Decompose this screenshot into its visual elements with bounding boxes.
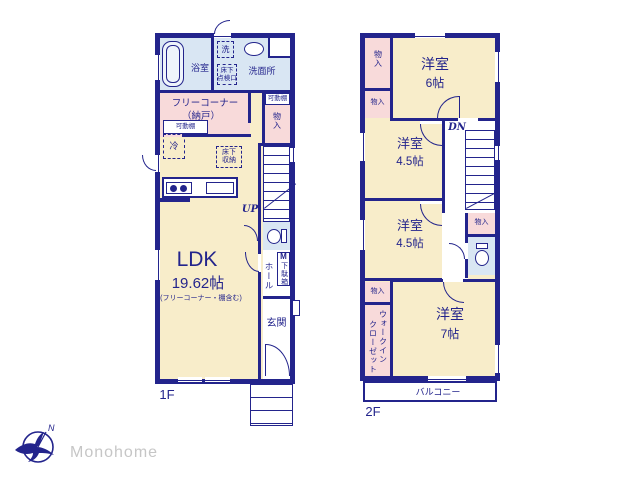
- floor2-label: 2F: [361, 404, 385, 419]
- room7-size: 7帖: [425, 327, 475, 341]
- fridge-space: 冷: [163, 134, 185, 159]
- kitchen-counter: [162, 177, 238, 198]
- underfloor-storage-line1: 床下: [222, 149, 236, 157]
- backdoor-arc: [214, 20, 230, 34]
- movable-shelf-right: 可動棚: [265, 93, 290, 105]
- wall: [390, 279, 393, 376]
- wall: [390, 38, 393, 121]
- shoe-cabinet-label: 下駄箱: [279, 262, 287, 286]
- wall: [268, 38, 270, 58]
- ldk-name: LDK: [166, 248, 228, 273]
- hall-door-arc: [245, 252, 259, 272]
- movable-shelf-label: 可動棚: [176, 123, 196, 131]
- room-bath-label: 浴室: [186, 63, 214, 74]
- wall: [211, 38, 214, 90]
- kitchen-sink: [206, 182, 234, 194]
- washing-machine-label: 洗: [222, 45, 230, 54]
- window: [415, 33, 445, 38]
- underfloor-access-hatch: 床下 点検口: [217, 64, 237, 85]
- room45a-size: 4.5帖: [380, 156, 440, 170]
- window: [360, 133, 365, 161]
- underfloor-storage-line2: 収納: [222, 157, 236, 165]
- free-corner-label: フリーコーナー: [165, 98, 245, 109]
- stairs-up-label: UP: [240, 204, 260, 216]
- washbasin-sink: [244, 42, 264, 56]
- underfloor-access-line2: 点検口: [217, 75, 237, 83]
- room6-door-arc: [437, 96, 459, 118]
- window: [290, 148, 295, 162]
- toilet-tank: [281, 229, 287, 243]
- logo-brand: Monohome: [70, 444, 158, 462]
- washing-machine-space: 洗: [217, 41, 234, 58]
- toilet-door-gap: [258, 225, 261, 241]
- movable-shelf-right-label: 可動棚: [268, 95, 288, 103]
- wic-label-line2: クローゼット: [368, 320, 377, 374]
- stove-burner: [170, 185, 177, 192]
- staircase-down: [465, 130, 495, 210]
- window: [495, 146, 500, 160]
- room6-name: 洋室: [405, 56, 465, 73]
- svg-text:N: N: [48, 423, 55, 433]
- toilet2-bowl: [475, 250, 489, 266]
- room6-door-leaf: [459, 96, 460, 118]
- storage-right-label: 物入: [272, 112, 281, 130]
- stove: [166, 182, 192, 194]
- sidedoor-arc: [142, 155, 156, 171]
- movable-shelf: 可動棚: [163, 120, 208, 134]
- entrance-door-leaf: [265, 344, 266, 376]
- storage-b-label: 物入: [365, 99, 390, 107]
- ldk-note: (フリーコーナー・棚含む): [156, 295, 246, 303]
- toilet2-door-gap: [465, 243, 468, 259]
- logo-compass-icon: N: [12, 420, 64, 470]
- window: [495, 52, 500, 82]
- toilet-bowl: [267, 229, 281, 244]
- floor1-plan: 浴室 洗 床下 点検口 洗面所 フリーコーナー （納戸） 可動棚 可動棚 物入 …: [155, 33, 295, 384]
- toilet2-tank: [476, 243, 488, 249]
- stairs-down-label: DN: [445, 122, 469, 134]
- room45b-size: 4.5帖: [380, 238, 440, 252]
- wall: [160, 198, 190, 202]
- washroom-closet: [270, 38, 290, 57]
- balcony-label: バルコニー: [413, 387, 463, 398]
- toilet-door-arc: [244, 225, 258, 241]
- shoe-cabinet: M 下駄箱: [277, 252, 290, 286]
- window: [155, 250, 160, 280]
- staircase-up: [263, 146, 290, 222]
- bathtub: [162, 41, 184, 87]
- wall: [248, 93, 251, 123]
- porch-steps: [250, 384, 293, 426]
- storage-d-label: 物入: [365, 288, 390, 296]
- wall: [268, 56, 290, 58]
- room7-name: 洋室: [420, 306, 480, 323]
- wall: [442, 121, 445, 213]
- window: [205, 377, 230, 382]
- stove-burner: [180, 185, 187, 192]
- window: [360, 220, 365, 250]
- room-washroom-label: 洗面所: [240, 66, 284, 77]
- logo: N Monohome: [12, 420, 212, 472]
- floor2-plan: 物入 物入 洋室 6帖 DN 洋室 4.5帖 洋室 4.5帖 物入 物入 ウォー…: [360, 33, 500, 381]
- room7-door-arc: [443, 282, 464, 303]
- floor1-label: 1F: [156, 387, 178, 402]
- ldk-size: 19.62帖: [160, 275, 236, 293]
- underfloor-storage: 床下 収納: [216, 146, 242, 168]
- entrance-label: 玄関: [263, 318, 290, 330]
- storage-a-label: 物入: [373, 50, 382, 68]
- window: [155, 55, 160, 80]
- room6-size: 6帖: [410, 76, 460, 90]
- window: [495, 345, 500, 373]
- window: [178, 377, 202, 382]
- storage-c-label: 物入: [468, 219, 495, 227]
- hall-label: ホール: [264, 262, 274, 291]
- entrance-side-panel: [292, 300, 300, 316]
- window: [428, 376, 466, 381]
- wall: [182, 134, 251, 137]
- underfloor-access-line1: 床下: [221, 67, 234, 75]
- fridge-label: 冷: [169, 141, 178, 152]
- wic-label-line1: ウォークイン: [378, 310, 387, 364]
- shoe-cabinet-prefix: M: [280, 252, 287, 261]
